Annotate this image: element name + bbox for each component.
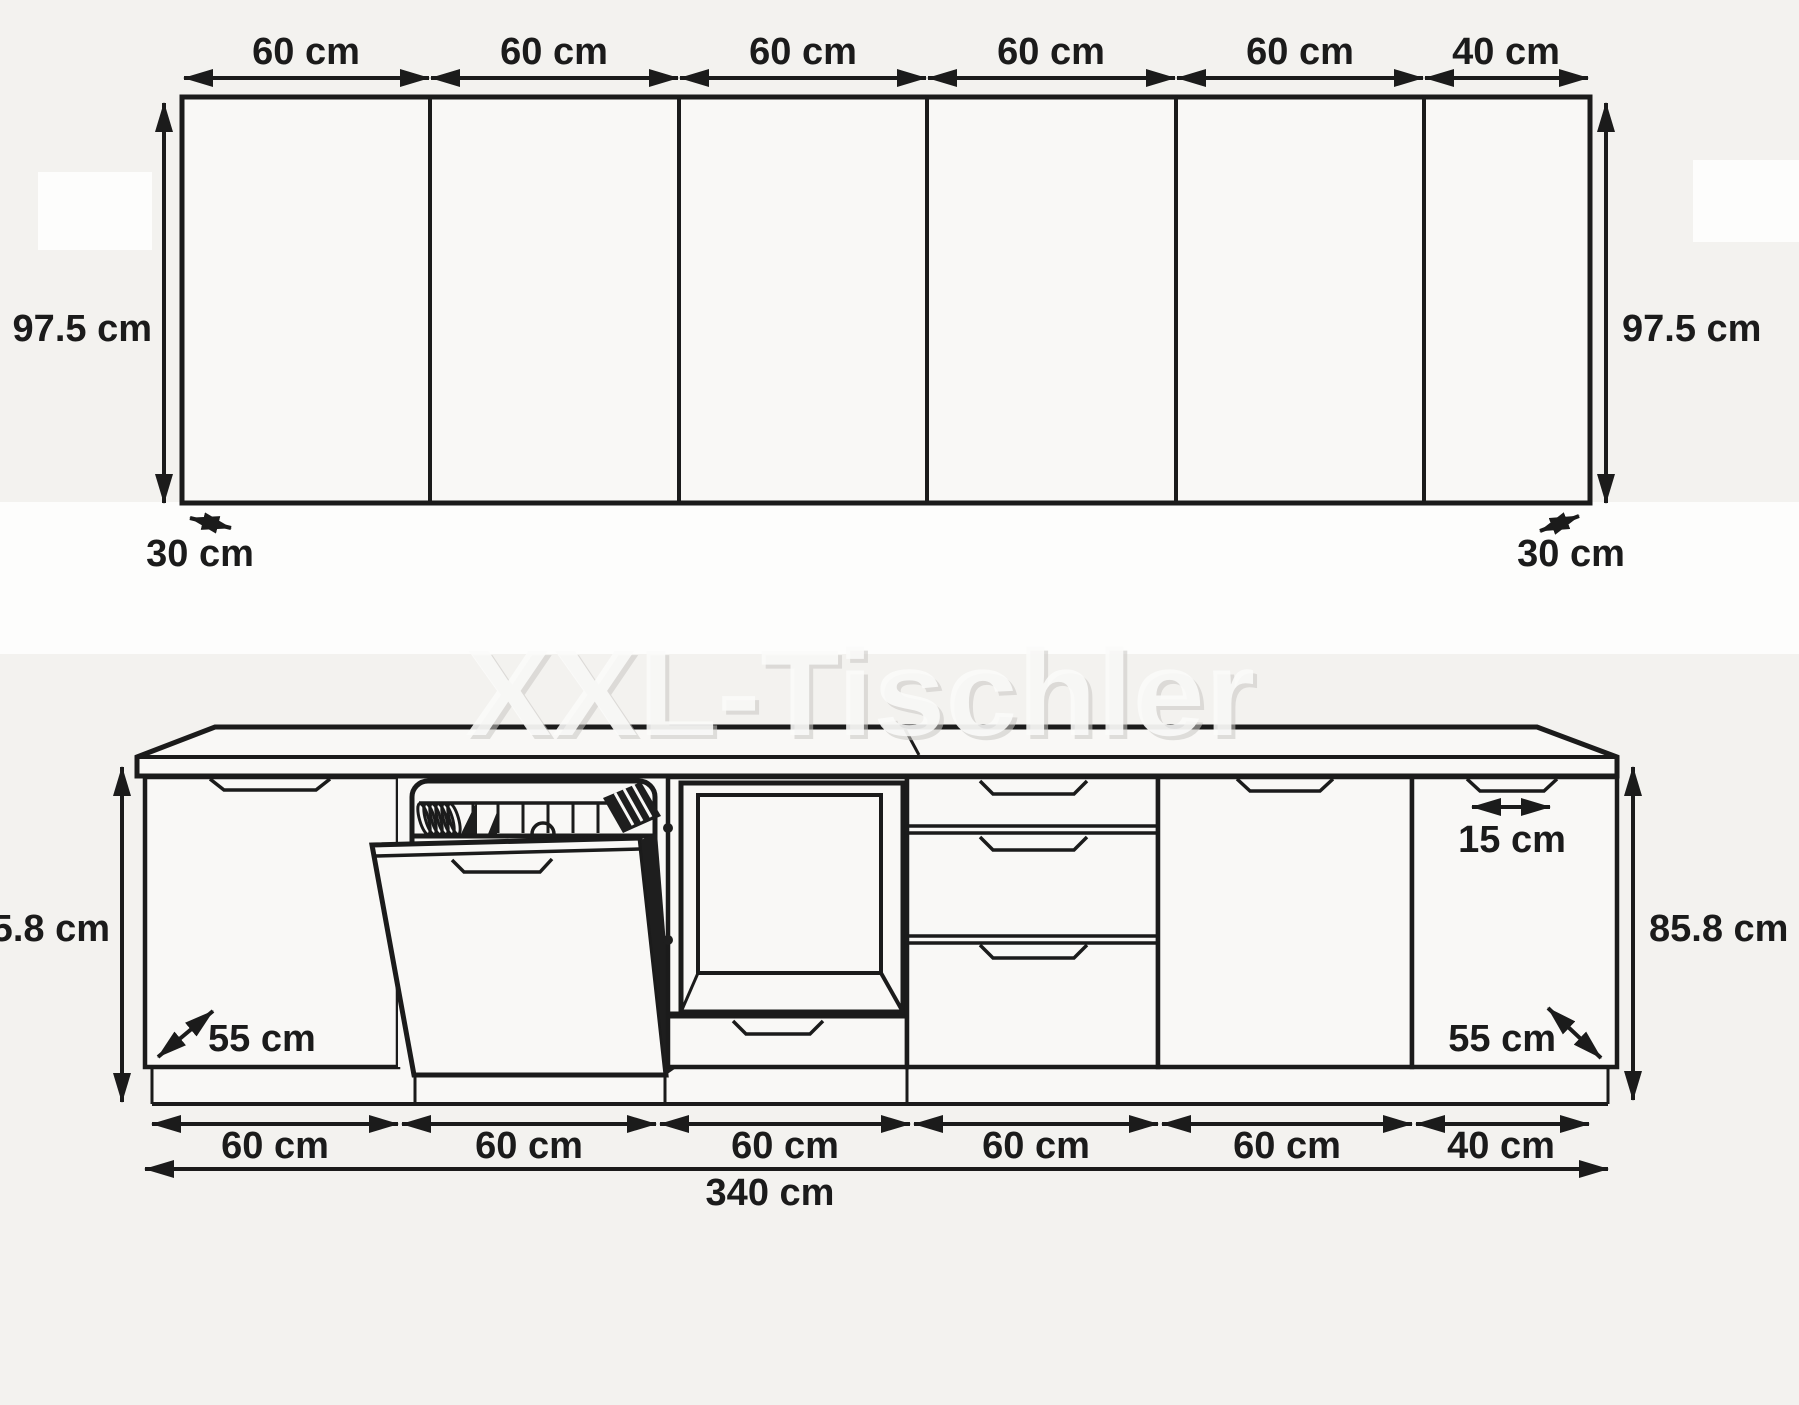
base-cabinet-run	[137, 727, 1617, 1104]
plinth-face	[152, 1067, 1608, 1104]
open-compartment-unit	[663, 777, 907, 1067]
wall-height-label-right: 97.5 cm	[1622, 308, 1761, 350]
open-compartment-section	[668, 777, 907, 1067]
dishwasher	[372, 777, 676, 1075]
base-width-label-3: 60 cm	[731, 1125, 839, 1167]
hinge-dot-top	[663, 823, 673, 833]
hinge-dot-bottom	[663, 935, 673, 945]
base-width-label-2: 60 cm	[475, 1125, 583, 1167]
wall-width-label-2: 60 cm	[500, 31, 608, 73]
base-depth-label-right: 55 cm	[1448, 1018, 1556, 1060]
wall-width-label-5: 60 cm	[1246, 31, 1354, 73]
base-height-label-left: 85.8 cm	[0, 908, 110, 950]
base-depth-label-left: 55 cm	[208, 1018, 316, 1060]
base-width-label-1: 60 cm	[221, 1125, 329, 1167]
wall-width-label-1: 60 cm	[252, 31, 360, 73]
dishwasher-door	[372, 833, 676, 1075]
base-door-60	[1158, 777, 1412, 1067]
diagram-canvas: 60 cm 60 cm 60 cm 60 cm 60 cm 40 cm 97.5…	[0, 0, 1799, 1405]
wall-width-label-6: 40 cm	[1452, 31, 1560, 73]
wall-cabinet-body	[182, 97, 1590, 503]
white-patch-left	[38, 172, 152, 250]
plinth	[152, 1067, 1608, 1104]
base-height-label-right: 85.8 cm	[1649, 908, 1788, 950]
drawer-unit	[907, 777, 1158, 1067]
base-width-label-6: 40 cm	[1447, 1125, 1555, 1167]
wall-height-label-left: 97.5 cm	[13, 308, 152, 350]
drawer-unit-body	[907, 777, 1158, 1067]
kitchen-dimension-diagram: 60 cm 60 cm 60 cm 60 cm 60 cm 40 cm 97.5…	[0, 0, 1799, 1405]
base-width-label-5: 60 cm	[1233, 1125, 1341, 1167]
wall-depth-label-left: 30 cm	[146, 533, 254, 575]
watermark-text: XXL-Tischler	[465, 625, 1255, 761]
white-patch-right	[1693, 160, 1799, 242]
wall-depth-label-right: 30 cm	[1517, 533, 1625, 575]
watermark: XXL-Tischler XXL-Tischler	[465, 625, 1259, 765]
wall-cabinet-run	[182, 97, 1590, 503]
wall-width-label-3: 60 cm	[749, 31, 857, 73]
wall-width-label-4: 60 cm	[997, 31, 1105, 73]
base-door-60-panel	[1158, 777, 1412, 1067]
base-total-width-label: 340 cm	[706, 1172, 835, 1214]
base-width-label-4: 60 cm	[982, 1125, 1090, 1167]
handle-width-label: 15 cm	[1458, 819, 1566, 861]
